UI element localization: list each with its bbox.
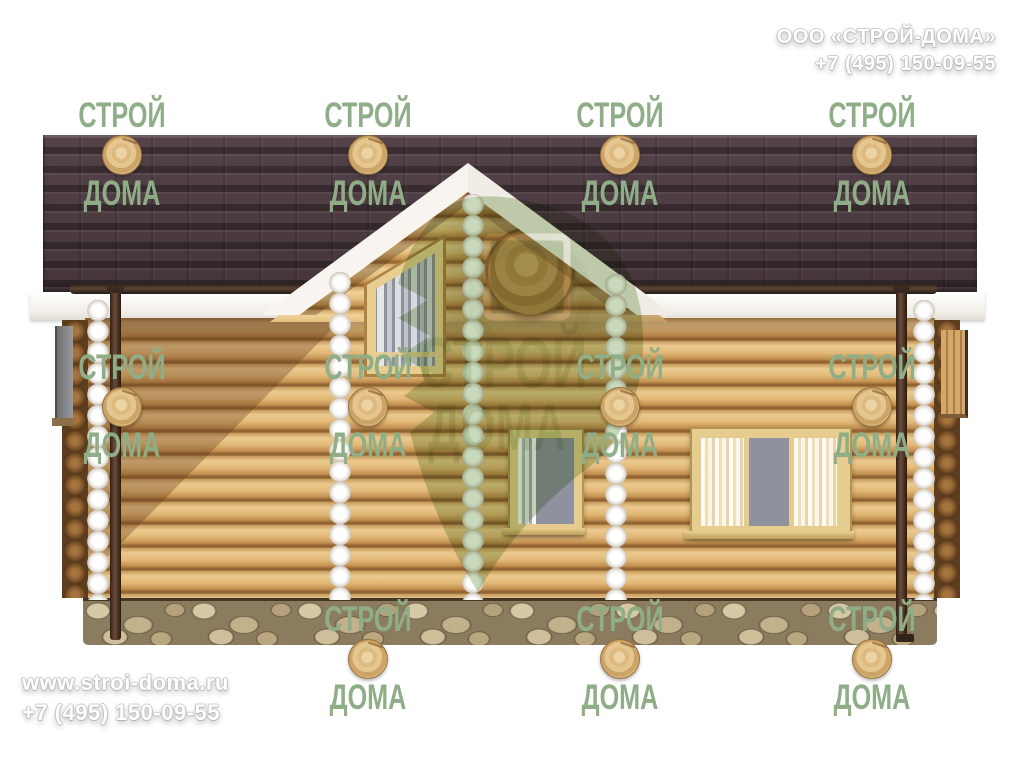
stone-foundation	[83, 598, 937, 645]
watermark-word-top: СТРОЙ	[307, 100, 429, 132]
downpipe-left	[110, 290, 121, 640]
large-window	[690, 427, 852, 537]
joint-column-left-corner	[87, 300, 109, 600]
website-stamp: www.stroi-doma.ru +7 (495) 150-09-55	[22, 668, 229, 728]
company-stamp: ООО «СТРОЙ-ДОМА» +7 (495) 150-09-55	[777, 24, 996, 78]
side-shutter-right	[941, 330, 968, 418]
joint-column-right-corner	[913, 300, 935, 600]
log-end-icon	[852, 639, 892, 679]
render-canvas: СТРОЙ ДОМА СТРОЙ ДОМА СТРОЙ ДОМА СТРОЙ Д…	[0, 0, 1024, 768]
joint-column-gable-center	[462, 194, 484, 600]
watermark-word-bottom: ДОМА	[307, 682, 429, 714]
large-window-pane-left	[701, 438, 744, 526]
downpipe-foot	[896, 634, 914, 642]
watermark-word-top: СТРОЙ	[811, 100, 933, 132]
joint-column-gable-left	[329, 272, 351, 600]
watermark-word-bottom: ДОМА	[559, 682, 681, 714]
company-phone: +7 (495) 150-09-55	[777, 51, 996, 78]
website-phone: +7 (495) 150-09-55	[22, 698, 229, 728]
curtain	[518, 438, 536, 524]
side-window-left	[55, 326, 73, 420]
watermark-word-bottom: ДОМА	[811, 682, 933, 714]
large-window-sill	[684, 531, 854, 539]
watermark-word-top: СТРОЙ	[559, 100, 681, 132]
log-end-icon	[348, 639, 388, 679]
small-window	[508, 428, 584, 534]
downpipe-right	[896, 290, 907, 640]
log-end-icon	[600, 639, 640, 679]
joint-column-gable-right	[605, 274, 627, 600]
small-window-sill	[503, 528, 585, 535]
small-window-glass	[518, 438, 574, 524]
large-window-pane-middle	[749, 438, 789, 526]
company-name: ООО «СТРОЙ-ДОМА»	[777, 24, 996, 51]
website-url: www.stroi-doma.ru	[22, 668, 229, 698]
large-window-pane-right	[794, 438, 837, 526]
side-window-sill	[52, 418, 73, 426]
round-log-rosette	[485, 227, 575, 317]
watermark-word-top: СТРОЙ	[61, 100, 183, 132]
